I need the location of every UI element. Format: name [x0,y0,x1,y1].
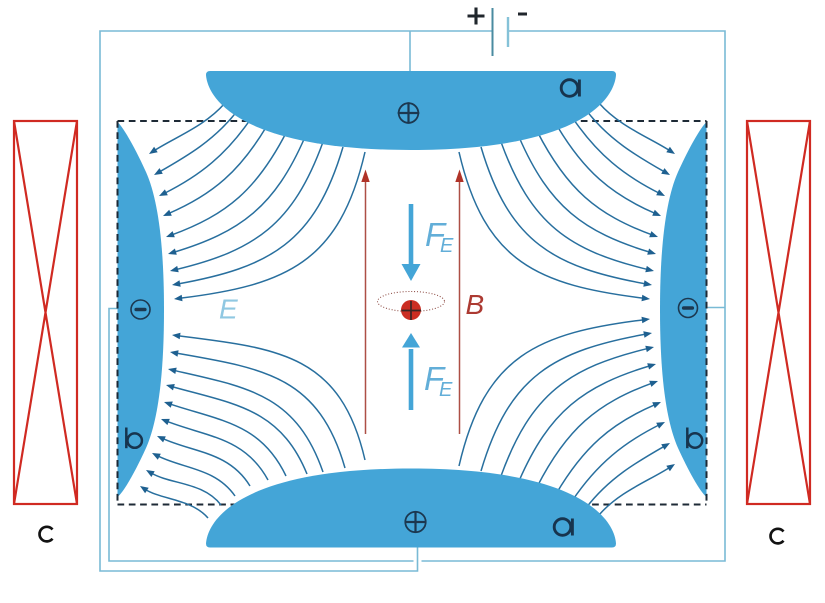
svg-text:E: E [219,294,238,325]
svg-text:E: E [439,379,453,401]
svg-text:E: E [440,235,454,257]
svg-text:B: B [466,289,485,320]
